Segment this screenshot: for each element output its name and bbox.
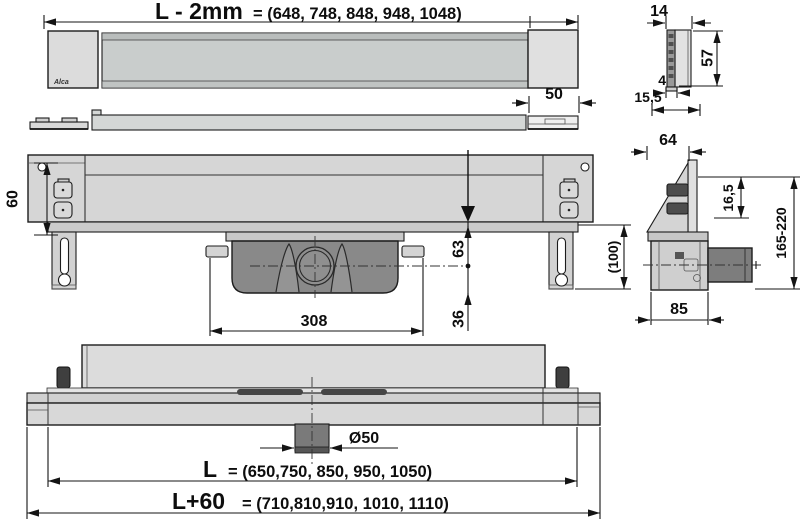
trap-wing-right	[402, 246, 424, 257]
dim-side-64: 64	[631, 132, 706, 161]
dim-values-L60: = (710,810,910, 1010, 1110)	[242, 495, 449, 513]
panel-section	[675, 30, 691, 87]
wall-panel-front	[82, 345, 545, 388]
drain-slot-right	[321, 389, 387, 395]
dim-label-60: 60	[5, 190, 22, 208]
cover-bar	[102, 33, 528, 88]
view-cover-profile: 50	[30, 86, 596, 130]
dim-label-36: 36	[451, 310, 468, 328]
dim-label-85: 85	[670, 301, 688, 318]
dim-front-63-36: 63 36	[451, 222, 471, 331]
dim-label-L: L	[203, 456, 217, 482]
dim-label-64: 64	[659, 132, 677, 149]
trap-wing-left	[206, 246, 228, 257]
cover-right-end-plate	[528, 30, 578, 88]
view-side-section: 64 16,5 165-220 85	[631, 132, 800, 325]
clip-bar-upper	[667, 184, 688, 196]
dim-values-L: = (650,750, 850, 950, 1050)	[228, 463, 432, 481]
dim-side-85: 85	[635, 292, 724, 325]
dim-label-L60: L+60	[172, 488, 225, 514]
leg-right	[549, 232, 573, 289]
drain-slot-left	[237, 389, 303, 395]
channel-body-section	[651, 241, 708, 290]
dim-label-4: 4	[658, 72, 666, 88]
right-anchor-bracket	[528, 116, 578, 129]
dim-label-L-2mm: L - 2mm	[155, 0, 243, 24]
wall-clips-right	[560, 179, 578, 218]
section-foot	[666, 87, 677, 91]
screw-hole-right	[581, 163, 589, 171]
dim-label-63: 63	[451, 240, 468, 258]
view-front-body: 60 63 36 308 (100)	[5, 150, 632, 336]
channel-body	[28, 155, 593, 222]
dim-values-L-2mm: = (648, 748, 848, 948, 1048)	[253, 5, 462, 23]
dim-front-leg-100: (100)	[575, 225, 631, 289]
dim-top-length: L - 2mm = (648, 748, 848, 948, 1048)	[44, 0, 578, 29]
cover-profile-strip	[92, 115, 526, 130]
dim-label-dia50: Ø50	[349, 430, 379, 447]
cover-bar-bottom-band	[102, 81, 528, 88]
dim-dot	[466, 264, 471, 269]
wedge-bracket	[647, 163, 688, 232]
dim-label-308: 308	[301, 313, 328, 330]
left-anchor-tab	[36, 118, 49, 122]
body-footer-rail	[48, 222, 578, 232]
trap-assembly	[206, 232, 470, 298]
channel-strip-front	[27, 393, 600, 403]
view-top-cover: L - 2mm = (648, 748, 848, 948, 1048) Alc…	[44, 0, 578, 88]
channel-top-band	[47, 388, 578, 393]
dim-strip-50: 50	[512, 86, 596, 113]
leg-slot	[558, 238, 566, 274]
cover-bar-top-band	[102, 33, 528, 40]
dim-label-16-5: 16,5	[720, 184, 736, 211]
wall-clips-left	[54, 179, 72, 218]
dim-label-100: (100)	[605, 241, 621, 274]
dim-label-165-220: 165-220	[773, 207, 789, 259]
fixing-pin-left	[57, 367, 70, 388]
view-end-section: 14 57 4 15,5	[634, 3, 723, 116]
channel-body-front	[27, 403, 600, 425]
dim-label-50: 50	[545, 86, 563, 103]
view-bottom-assembly: Ø50 L = (650,750, 850, 950, 1050) L+60 =…	[27, 345, 600, 519]
dim-end-14: 14	[647, 3, 711, 29]
technical-drawing-page: L - 2mm = (648, 748, 848, 948, 1048) Alc…	[0, 0, 800, 521]
dim-side-165-220: 165-220	[755, 177, 800, 289]
dim-end-15-5: 15,5	[634, 89, 700, 116]
dim-label-14: 14	[650, 3, 668, 20]
leg-hole	[556, 274, 568, 286]
leg-hole	[59, 274, 71, 286]
dim-label-57: 57	[700, 49, 717, 67]
wall-panel-edge	[688, 160, 697, 235]
leg-slot	[61, 238, 69, 274]
leg-left	[52, 232, 76, 289]
left-anchor-clip	[30, 122, 88, 129]
brand-logo: Alca	[53, 79, 69, 86]
fixing-pin-right	[556, 367, 569, 388]
clip-bar-lower	[667, 203, 688, 214]
dim-label-15-5: 15,5	[634, 89, 661, 105]
left-anchor-tab	[62, 118, 77, 122]
screw-hole-left	[38, 163, 46, 171]
channel-lip-section	[648, 232, 708, 241]
section-detail	[675, 252, 684, 259]
drawing-canvas: L - 2mm = (648, 748, 848, 948, 1048) Alc…	[0, 0, 800, 521]
